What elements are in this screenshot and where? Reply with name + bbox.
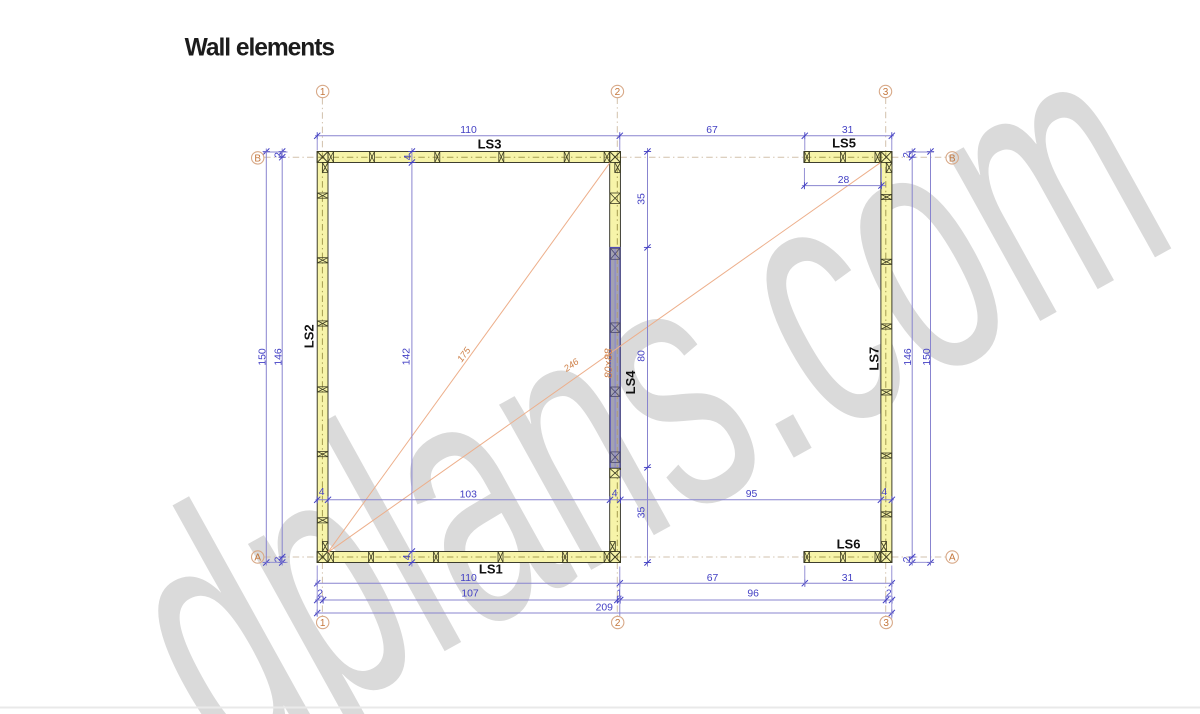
svg-text:LS2: LS2	[302, 324, 317, 348]
svg-text:LS4: LS4	[623, 370, 638, 395]
svg-text:2: 2	[902, 152, 913, 158]
svg-text:A: A	[949, 553, 956, 564]
svg-text:4: 4	[319, 487, 325, 498]
svg-text:1: 1	[320, 87, 326, 98]
svg-text:LS3: LS3	[478, 137, 502, 152]
svg-text:1: 1	[320, 618, 326, 629]
svg-text:209: 209	[596, 602, 614, 613]
svg-text:3: 3	[883, 87, 889, 98]
svg-text:4: 4	[403, 154, 414, 160]
svg-text:4: 4	[881, 487, 887, 498]
svg-text:2: 2	[615, 87, 621, 98]
svg-text:146: 146	[903, 348, 914, 366]
svg-text:4: 4	[612, 489, 618, 500]
svg-text:2: 2	[273, 152, 284, 158]
svg-text:28: 28	[838, 175, 850, 186]
svg-text:35: 35	[637, 193, 648, 205]
svg-text:3: 3	[883, 618, 889, 629]
svg-text:103: 103	[460, 489, 478, 500]
svg-text:4: 4	[402, 554, 413, 560]
svg-text:142: 142	[401, 348, 412, 366]
svg-text:Wall elements: Wall elements	[185, 34, 335, 61]
svg-text:80×88: 80×88	[603, 348, 615, 378]
svg-text:110: 110	[460, 125, 477, 136]
svg-text:110: 110	[460, 573, 477, 584]
svg-text:B: B	[254, 154, 261, 165]
svg-text:31: 31	[842, 573, 854, 584]
svg-text:LS7: LS7	[867, 347, 882, 371]
svg-text:107: 107	[461, 588, 479, 599]
svg-text:150: 150	[922, 348, 933, 366]
svg-text:2: 2	[317, 588, 323, 599]
svg-text:35: 35	[637, 507, 648, 519]
svg-text:LS6: LS6	[837, 537, 861, 552]
svg-text:A: A	[254, 553, 261, 564]
svg-text:67: 67	[706, 125, 718, 136]
svg-text:B: B	[949, 154, 956, 165]
svg-text:2: 2	[615, 618, 621, 629]
svg-text:96: 96	[747, 588, 759, 599]
svg-text:150: 150	[257, 348, 268, 366]
svg-text:67: 67	[707, 573, 719, 584]
svg-text:80: 80	[637, 350, 648, 362]
svg-text:2: 2	[273, 556, 284, 562]
svg-text:2: 2	[902, 556, 913, 562]
svg-text:95: 95	[746, 489, 758, 500]
svg-text:2: 2	[886, 588, 892, 599]
svg-text:LS5: LS5	[832, 136, 856, 151]
svg-text:146: 146	[273, 348, 284, 366]
svg-text:LS1: LS1	[479, 562, 503, 577]
